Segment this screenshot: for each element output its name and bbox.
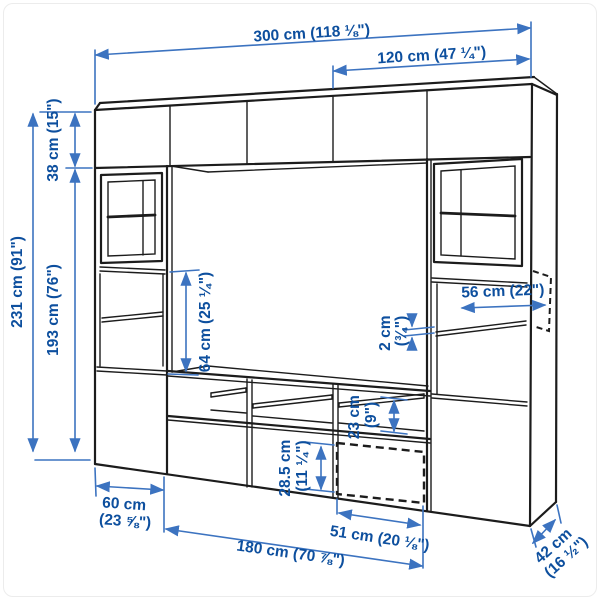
label-compartment-height-cm: 23 cm [346, 395, 363, 439]
label-shelf-thickness: 2 cm (¾") [377, 311, 410, 351]
label-door-width: 51 cm (20 ⅛") [329, 523, 431, 555]
furniture-line-art [95, 77, 557, 526]
label-drawer-height: 28.5 cm (11 ¼") [277, 435, 311, 496]
label-height-top-cabinet: 38 cm (15") [45, 98, 62, 181]
line-art-svg: 300 cm (118 ⅛") 120 cm (47 ¼") 231 cm (9… [0, 0, 600, 600]
label-drawer-height-cm: 28.5 cm [277, 440, 294, 497]
label-left-cabinet-width-in: (23 ⅝") [99, 511, 152, 532]
dimension-diagram: 300 cm (118 ⅛") 120 cm (47 ¼") 231 cm (9… [0, 0, 600, 600]
dimension-labels: 300 cm (118 ⅛") 120 cm (47 ¼") 231 cm (9… [9, 21, 591, 581]
label-drawer-height-in: (11 ¼") [294, 440, 311, 491]
label-width-right-section: 120 cm (47 ¼") [377, 44, 487, 68]
label-height-total: 231 cm (91") [9, 236, 26, 328]
label-shelf-thickness-in: (¾") [393, 316, 410, 347]
label-depth-total: 42 cm (16 ½") [530, 521, 592, 581]
label-width-total: 300 cm (118 ⅛") [253, 21, 371, 45]
label-height-tv-space: 64 cm (25 ¼") [197, 272, 214, 372]
label-compartment-height-in: (9") [363, 402, 380, 428]
label-shelf-thickness-cm: 2 cm [377, 315, 394, 350]
label-shelf-depth: 56 cm (22") [461, 282, 545, 302]
label-height-tall-cabinet: 193 cm (76") [45, 264, 62, 356]
label-left-cabinet-width: 60 cm (23 ⅝") [99, 494, 153, 532]
dashed-depth-outline [533, 271, 551, 331]
label-tv-bench-width: 180 cm (70 ⅞") [235, 538, 345, 570]
dashed-door-outline [337, 443, 424, 503]
label-compartment-height: 23 cm (9") [346, 391, 380, 439]
